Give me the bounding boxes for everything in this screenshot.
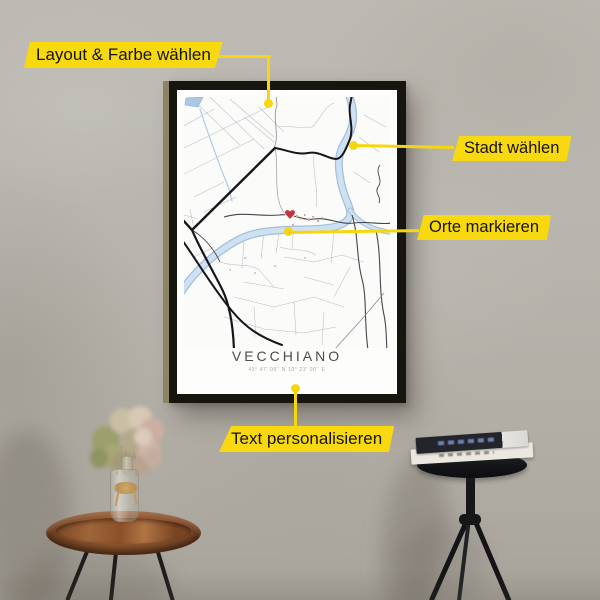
stool-leg-joint xyxy=(459,514,481,525)
city-map xyxy=(184,97,390,348)
book-spine-text xyxy=(438,437,498,445)
map-graphic xyxy=(184,97,390,348)
connector-dot-places xyxy=(284,227,293,236)
callout-layout-color[interactable]: Layout & Farbe wählen xyxy=(24,42,223,68)
marked-buildings xyxy=(292,214,323,226)
callout-city[interactable]: Stadt wählen xyxy=(452,136,571,161)
callout-places[interactable]: Orte markieren xyxy=(417,215,551,240)
flower-wall-shadow xyxy=(0,430,72,600)
connector-dot-text xyxy=(291,384,300,393)
stool-leg xyxy=(471,516,512,600)
floor-shadow xyxy=(0,570,600,600)
connector-dot-layout xyxy=(264,99,273,108)
table-leg xyxy=(65,548,90,600)
connector-line-layout-v xyxy=(267,55,270,103)
connector-line-text xyxy=(294,390,297,428)
poster-coordinates: 43° 47' 00'' N 10° 23' 00'' E xyxy=(177,367,397,373)
table-shadow xyxy=(20,548,170,600)
map-poster: VECCHIANO 43° 47' 00'' N 10° 23' 00'' E xyxy=(177,90,397,394)
table-leg xyxy=(155,548,175,600)
poster-frame: VECCHIANO 43° 47' 00'' N 10° 23' 00'' E xyxy=(168,81,406,403)
connector-dot-city xyxy=(349,141,358,150)
table-leg xyxy=(109,552,118,600)
frame-side-edge xyxy=(163,81,169,403)
stool-wall-shadow-2 xyxy=(398,520,488,600)
room-scene: VECCHIANO 43° 47' 00'' N 10° 23' 00'' E … xyxy=(0,0,600,600)
callout-text[interactable]: Text personalisieren xyxy=(219,426,394,452)
heart-marker-icon xyxy=(285,210,296,220)
poster-title: VECCHIANO xyxy=(177,348,397,364)
